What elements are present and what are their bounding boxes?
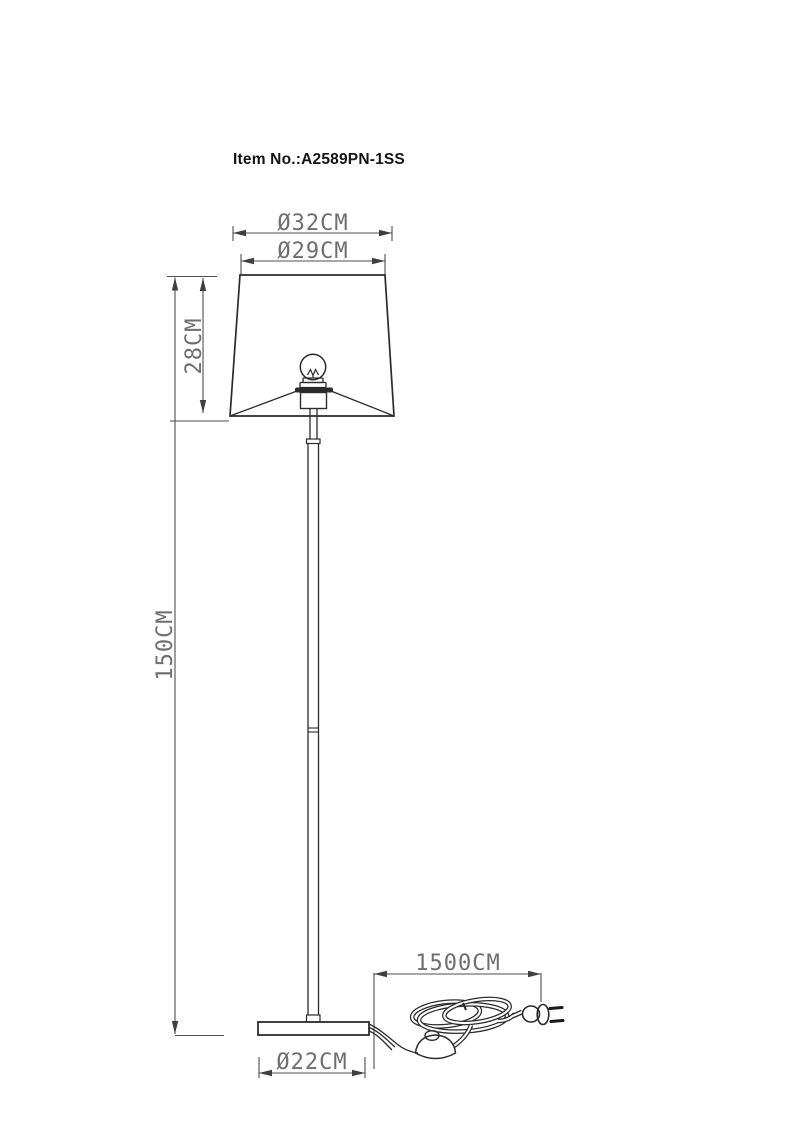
item-number-label: Item No.:A2589PN-1SS	[233, 151, 405, 168]
dim-cord-length: 1500CM	[374, 951, 541, 1069]
bulb-icon	[300, 354, 325, 379]
dim-shade-top-diameter: Ø29CM	[241, 239, 385, 275]
plug-prong	[550, 1008, 562, 1009]
dim-total-height: 150CM	[153, 278, 224, 1036]
dim-label-base-diameter: Ø22CM	[276, 1050, 347, 1075]
foot-switch	[416, 1031, 456, 1059]
dimension-annotations: Ø32CM Ø29CM 28CM 150CM	[153, 211, 541, 1078]
lamp-pole	[307, 409, 321, 1023]
power-cord	[369, 995, 515, 1053]
dim-label-total-height: 150CM	[153, 609, 178, 680]
pole-bottom-collar	[307, 1015, 321, 1022]
dim-label-shade-height: 28CM	[182, 318, 207, 375]
dim-shade-bottom-diameter: Ø32CM	[233, 211, 392, 241]
shade-inner-rim	[230, 391, 394, 416]
lamp-socket	[295, 378, 333, 409]
plug-prong	[551, 1021, 563, 1022]
lamp-drawing	[230, 275, 563, 1059]
dim-label-shade-top-diameter: Ø29CM	[277, 239, 348, 264]
dim-base-diameter: Ø22CM	[259, 1050, 365, 1078]
dim-shade-height: 28CM	[167, 277, 229, 422]
dim-label-cord-length: 1500CM	[415, 951, 500, 976]
power-plug	[513, 1005, 563, 1025]
floor-lamp-dimension-drawing: Item No.:A2589PN-1SS Ø32CM Ø29CM	[0, 0, 794, 1123]
lamp-base	[258, 1022, 369, 1035]
dim-label-shade-bottom-diameter: Ø32CM	[277, 211, 348, 236]
drawing-page: Item No.:A2589PN-1SS Ø32CM Ø29CM	[0, 0, 794, 1123]
lamp-shade	[230, 275, 394, 416]
